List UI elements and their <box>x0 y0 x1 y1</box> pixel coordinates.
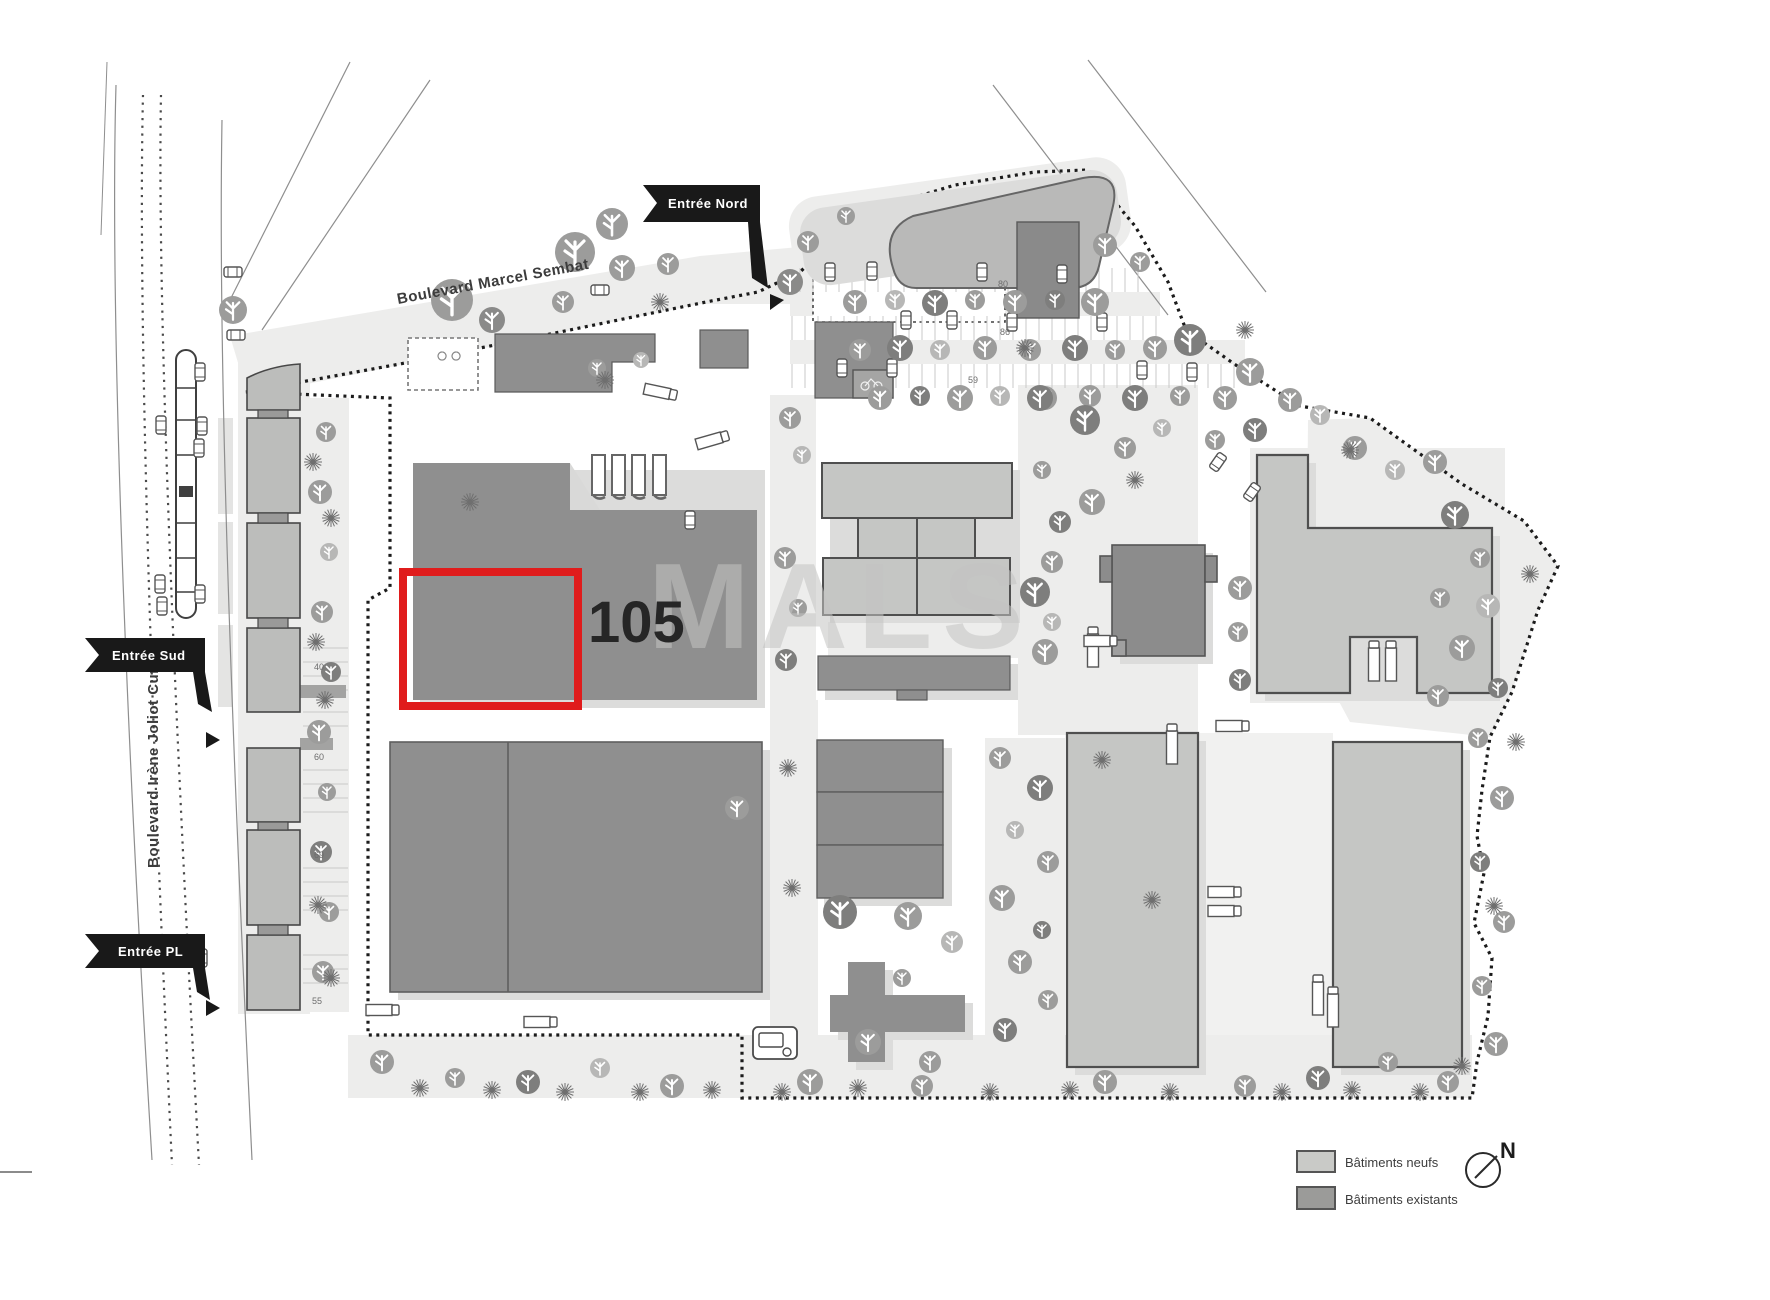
buildings-south-bars <box>817 740 943 898</box>
legend-item-new: Bâtiments neufs <box>1297 1151 1439 1172</box>
parcel-number: 105 <box>588 590 685 655</box>
svg-text:86: 86 <box>1000 327 1010 337</box>
entrance-pl-flag: Entrée PL <box>85 934 220 1016</box>
building-lower-left <box>390 742 762 992</box>
truck-icon <box>1386 641 1397 681</box>
legend-item-existing: Bâtiments existants <box>1297 1187 1458 1209</box>
north-label: N <box>1500 1138 1516 1163</box>
truck-cartoon <box>753 1027 797 1059</box>
building-small-existing <box>700 330 748 368</box>
svg-text:80: 80 <box>998 279 1008 289</box>
svg-text:40: 40 <box>314 662 324 672</box>
building-bottom-right-a <box>1067 733 1198 1067</box>
svg-text:59: 59 <box>968 375 978 385</box>
svg-text:Bâtiments existants: Bâtiments existants <box>1345 1192 1458 1207</box>
svg-text:69: 69 <box>314 850 324 860</box>
truck-icon <box>1369 641 1380 681</box>
tram-tracks <box>142 95 199 1165</box>
building-stepped-existing <box>495 334 655 392</box>
site-plan: MALS 105 Boulevard Marcel Sembat Bouleva… <box>0 0 1770 1300</box>
north-compass: N <box>1466 1138 1516 1187</box>
road-northwest-1 <box>230 62 350 300</box>
tram-vehicle <box>176 350 196 618</box>
svg-text:55: 55 <box>312 996 322 1006</box>
watermark: MALS <box>648 538 1034 674</box>
svg-text:Entrée PL: Entrée PL <box>118 944 183 959</box>
road-west-edge <box>115 85 152 1160</box>
street-joliot-curie: Boulevard Irène Joliot Curie <box>145 654 162 868</box>
building-outline-dashed <box>408 338 478 390</box>
buildings-left-column <box>247 364 300 1010</box>
legend: Bâtiments neufs Bâtiments existants <box>1297 1151 1458 1209</box>
svg-text:Entrée Nord: Entrée Nord <box>668 196 748 211</box>
svg-text:60: 60 <box>314 752 324 762</box>
site-plan-drawing: MALS 105 Boulevard Marcel Sembat Bouleva… <box>0 0 1770 1300</box>
svg-text:Entrée Sud: Entrée Sud <box>112 648 186 663</box>
svg-text:Bâtiments neufs: Bâtiments neufs <box>1345 1155 1439 1170</box>
building-bottom-right-b <box>1333 742 1462 1067</box>
truck-icon <box>695 430 730 450</box>
